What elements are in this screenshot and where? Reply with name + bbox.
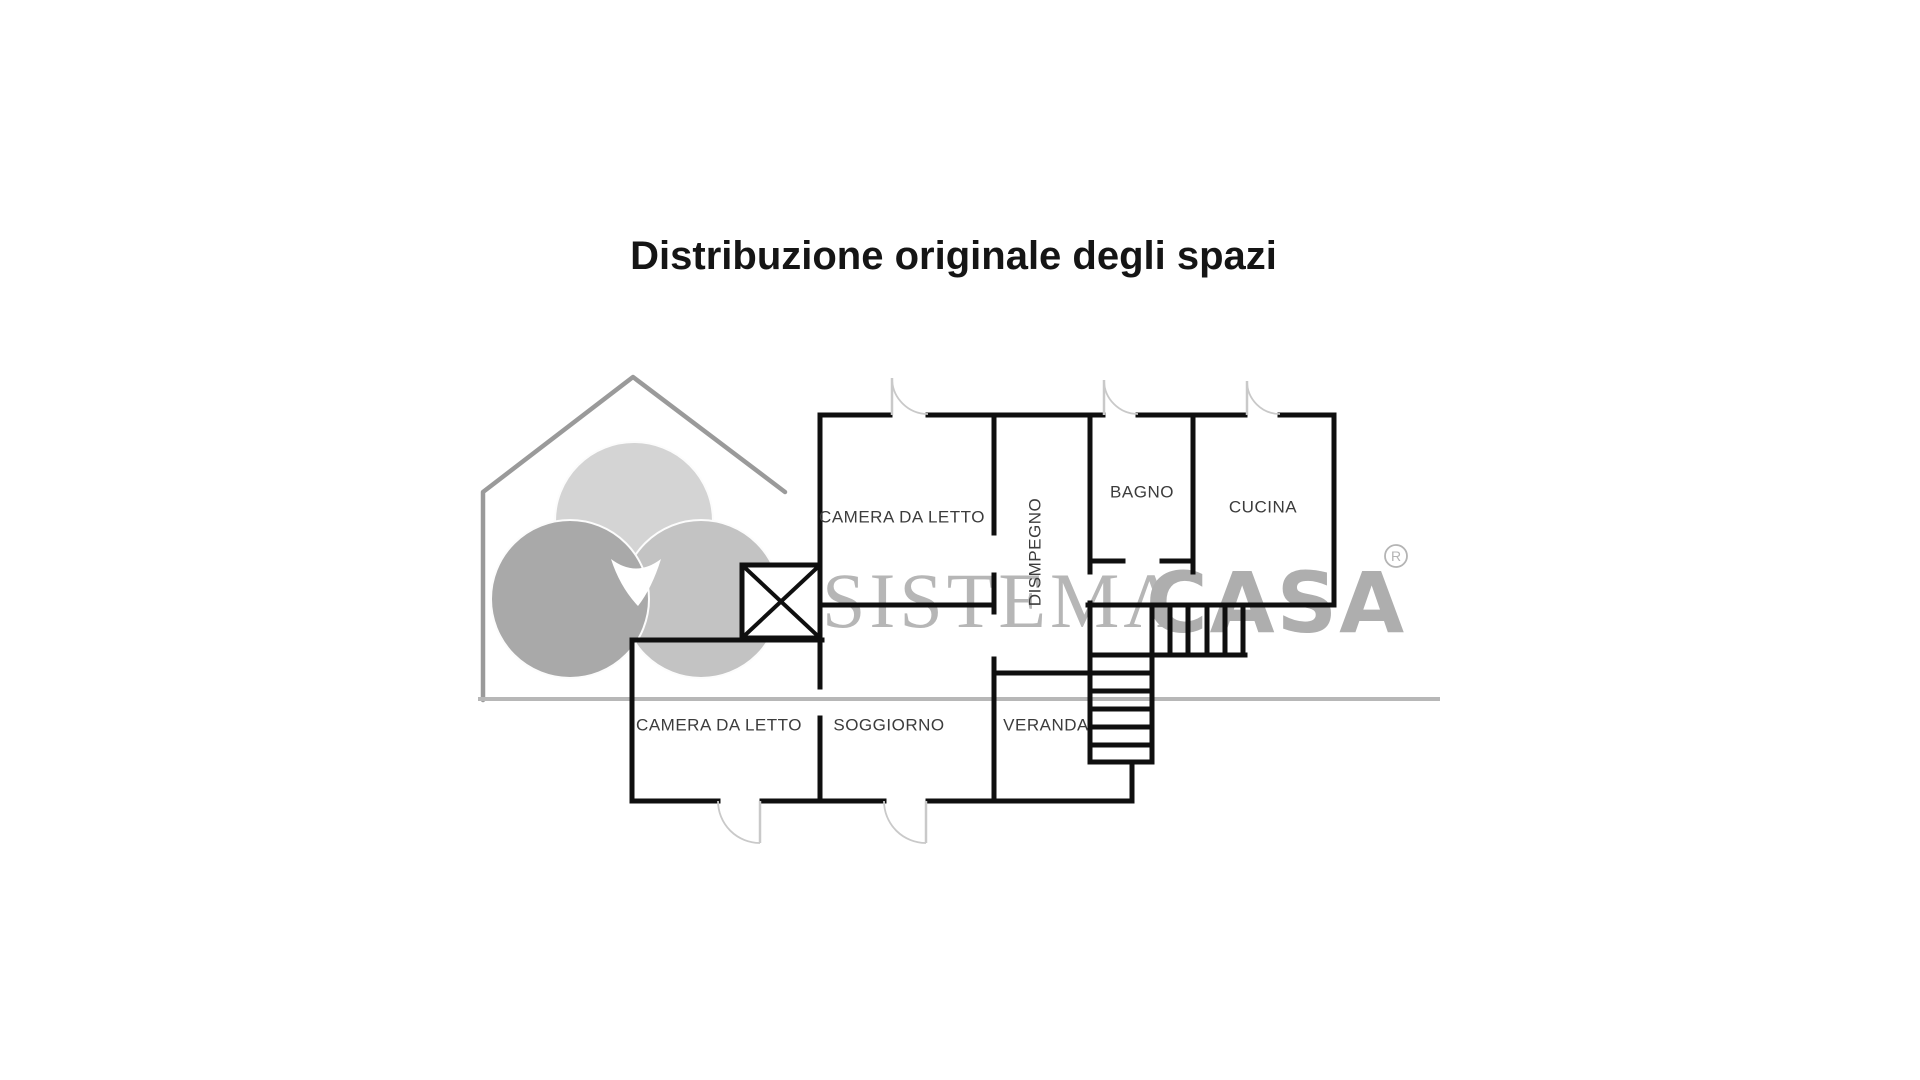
watermark-logo: SISTEMΛCASAR <box>478 377 1440 700</box>
room-label-camera-da-letto: CAMERA DA LETTO <box>819 507 985 526</box>
floor-plan-page: Distribuzione originale degli spazi SIST… <box>0 0 1920 1080</box>
room-label-camera-da-letto: CAMERA DA LETTO <box>636 715 802 734</box>
room-label-veranda: VERANDA <box>1003 715 1089 734</box>
registered-trademark-letter: R <box>1391 548 1401 564</box>
door-swing-arc <box>892 378 928 414</box>
door-swing-arc <box>1247 381 1280 414</box>
room-label-bagno: BAGNO <box>1110 482 1174 501</box>
room-label-dismpegno: DISMPEGNO <box>1025 498 1044 606</box>
door-swing-arc <box>718 801 760 843</box>
room-label-cucina: CUCINA <box>1229 497 1297 516</box>
watermark-brand-serif: SISTEMΛ <box>822 557 1184 644</box>
floor-plan-drawing: SISTEMΛCASAR CAMERA DA LETTODISMPEGNOBAG… <box>0 0 1920 1080</box>
door-swing-arc <box>884 801 926 843</box>
door-swing-arc <box>1104 380 1138 414</box>
room-label-soggiorno: SOGGIORNO <box>833 715 944 734</box>
watermark-circle <box>491 520 649 678</box>
